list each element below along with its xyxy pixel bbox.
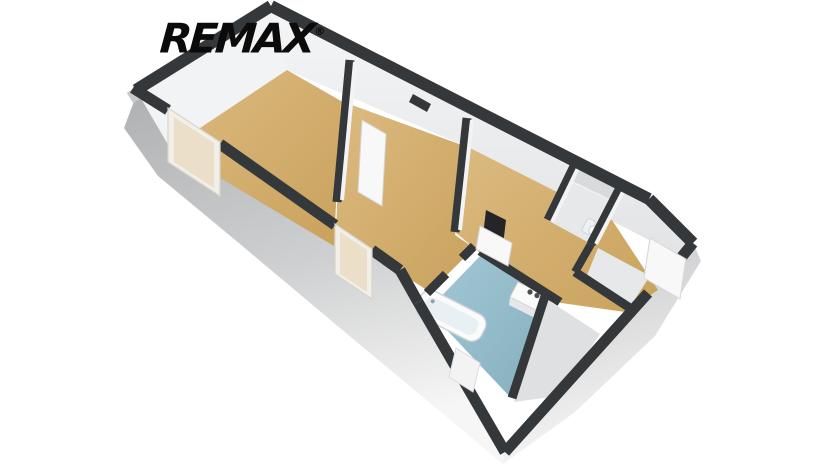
floorplan-3d [0,0,832,468]
remax-logo: REMAX® [159,19,327,60]
remax-logo-text: REMAX [158,15,314,63]
registered-mark: ® [314,25,326,38]
door-1-leaf [358,120,386,206]
floorplan-stage [0,0,832,468]
